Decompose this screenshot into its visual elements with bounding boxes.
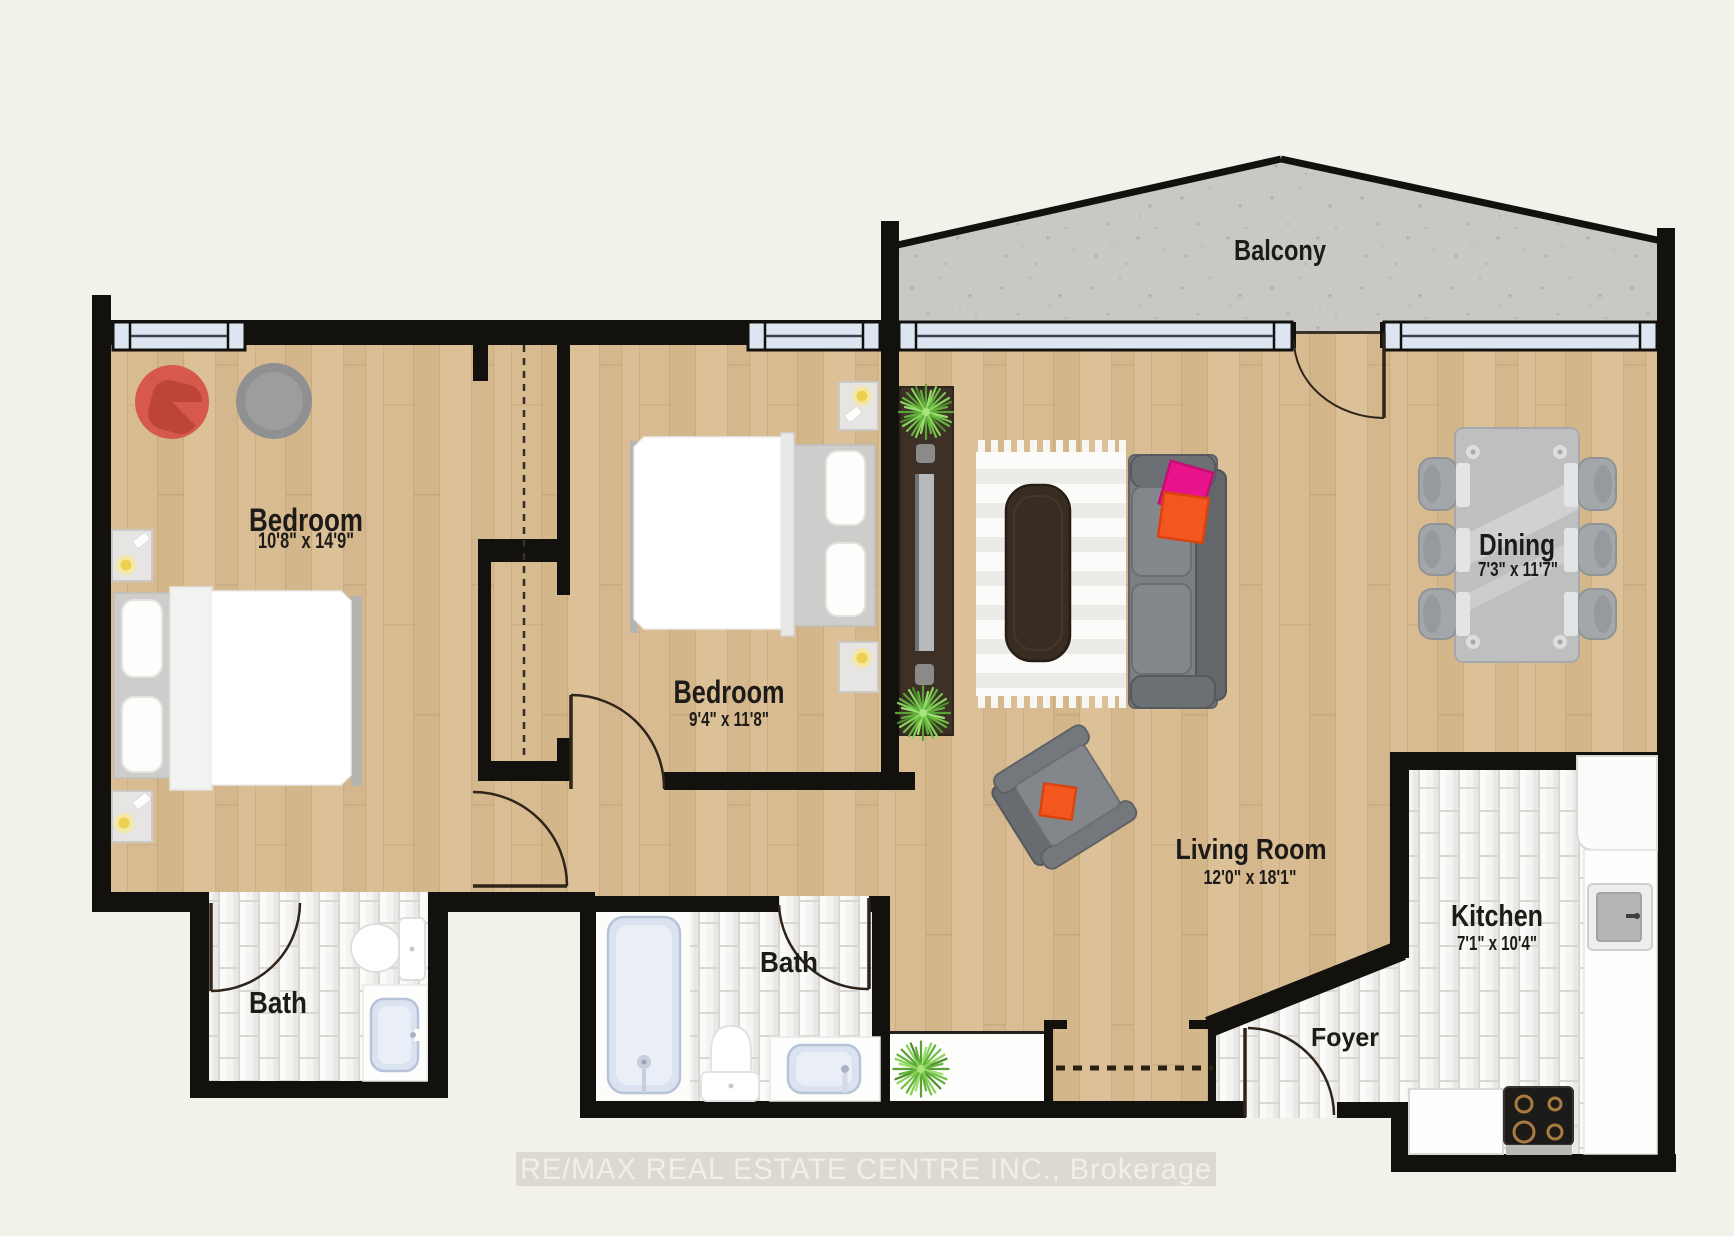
svg-text:7'3" x 11'7": 7'3" x 11'7"	[1478, 559, 1558, 581]
svg-text:RE/MAX REAL ESTATE CENTRE INC.: RE/MAX REAL ESTATE CENTRE INC., Brokerag…	[520, 1153, 1212, 1186]
svg-text:Living Room: Living Room	[1176, 834, 1327, 866]
svg-text:Bath: Bath	[760, 947, 818, 979]
svg-text:Balcony: Balcony	[1234, 235, 1326, 267]
svg-text:Kitchen: Kitchen	[1451, 898, 1543, 933]
svg-text:10'8" x 14'9": 10'8" x 14'9"	[258, 528, 354, 553]
svg-text:7'1" x 10'4": 7'1" x 10'4"	[1457, 933, 1537, 955]
svg-text:Bedroom: Bedroom	[674, 674, 785, 710]
svg-text:Bath: Bath	[249, 985, 307, 1020]
svg-text:12'0" x 18'1": 12'0" x 18'1"	[1204, 867, 1297, 889]
svg-text:Foyer: Foyer	[1311, 1022, 1379, 1052]
svg-text:Dining: Dining	[1479, 527, 1555, 562]
svg-text:9'4" x 11'8": 9'4" x 11'8"	[689, 709, 769, 731]
